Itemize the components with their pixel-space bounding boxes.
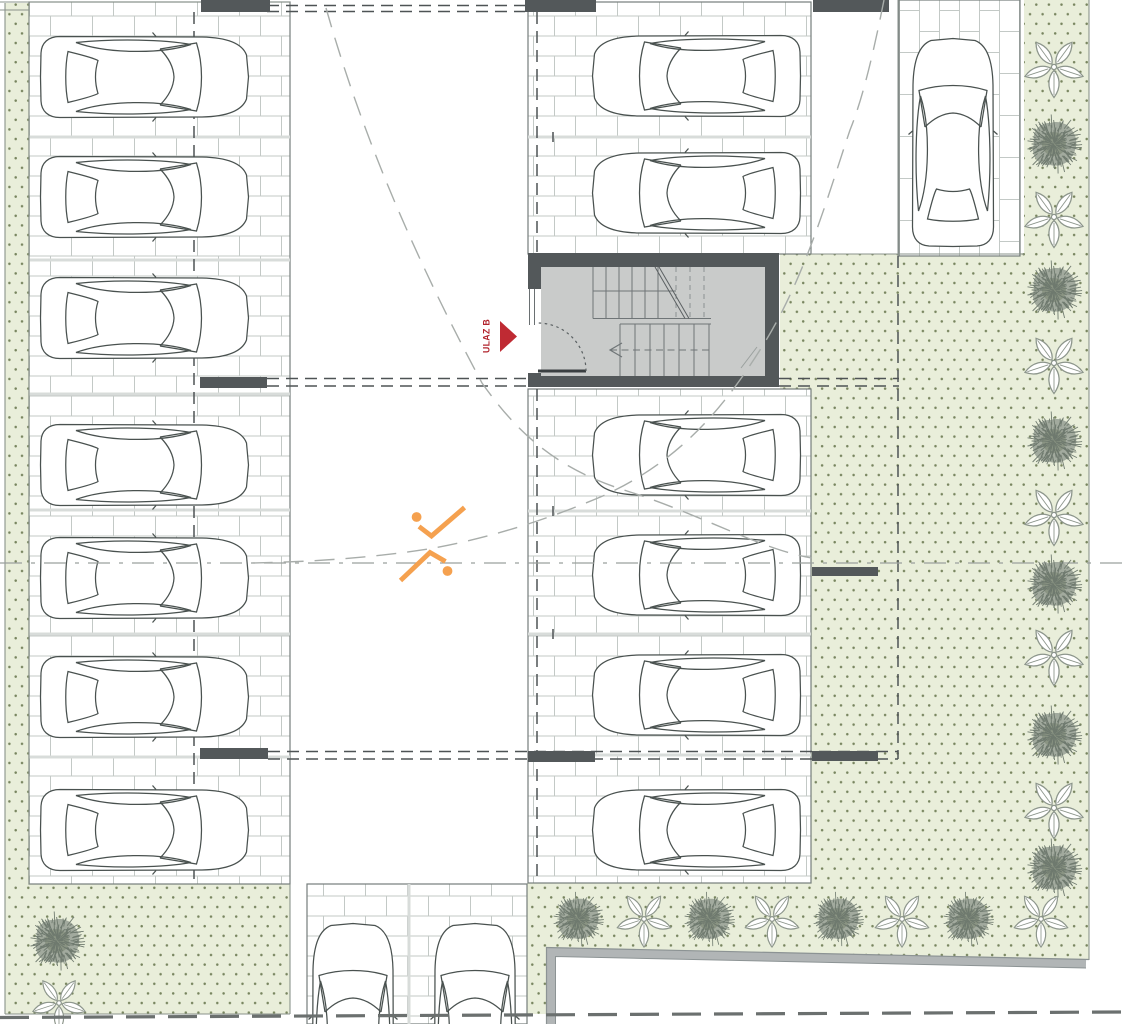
- svg-text:ULAZ B: ULAZ B: [482, 319, 492, 353]
